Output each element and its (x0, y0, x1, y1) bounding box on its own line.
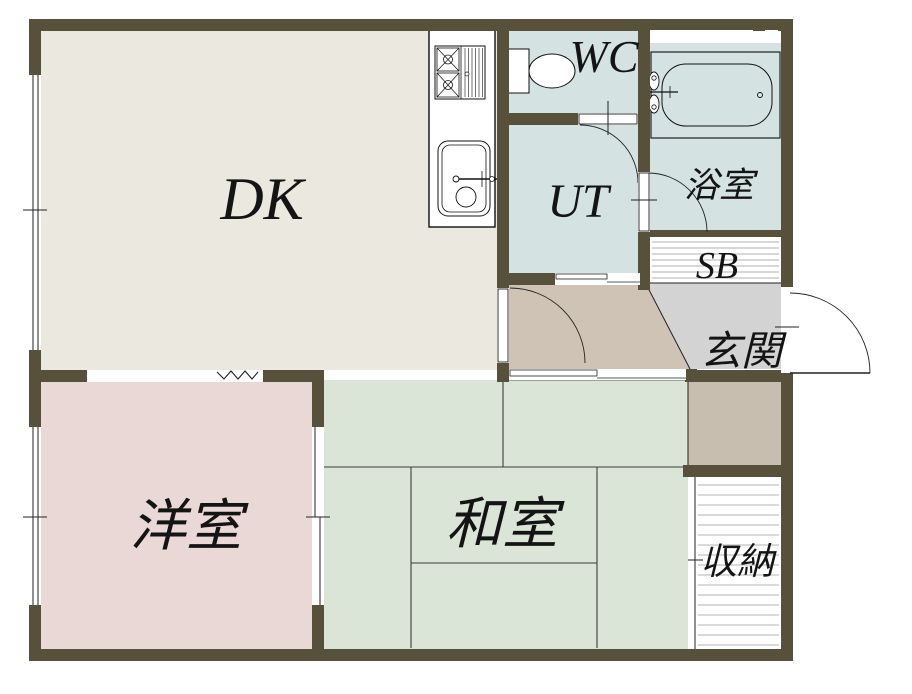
floor-plan: DK WC UT 浴室 SB 玄関 洋室 和室 収納 (0, 0, 912, 694)
kitchen-sink-icon (438, 141, 497, 216)
room-label-bath: 浴室 (684, 166, 759, 205)
wall-right-lower (781, 373, 793, 661)
wall-western-japanese-lower (312, 605, 324, 649)
side-floor (688, 382, 781, 465)
wall-dk-wc (497, 31, 509, 288)
bath-top-window (650, 30, 778, 43)
wall-ut-hall (509, 273, 555, 285)
room-label-ut: UT (547, 175, 612, 228)
entrance-door (775, 287, 870, 373)
wall-dk-western-right (263, 370, 324, 382)
wall-bath-sb (650, 230, 781, 237)
room-label-dk: DK (219, 166, 306, 232)
wall-right-upper (781, 19, 793, 287)
room-label-storage: 収納 (700, 542, 777, 583)
entrance-door-arc (790, 293, 870, 373)
stove-icon (435, 46, 485, 99)
floor-plan-drawing: DK WC UT 浴室 SB 玄関 洋室 和室 収納 (0, 0, 912, 694)
dk-western-opening (87, 370, 263, 382)
kitchen-unit (429, 30, 497, 227)
wall-left-upper (29, 19, 41, 75)
wall-dk-hall-stub (497, 363, 509, 382)
room-label-western-room: 洋室 (130, 496, 249, 558)
wall-bottom (29, 649, 793, 661)
wall-top (29, 19, 793, 31)
hall-japanese-sliding-door (509, 369, 686, 380)
wall-western-japanese-upper (312, 382, 324, 427)
wall-left-middle (29, 350, 41, 427)
room-label-japanese-room: 和室 (446, 494, 565, 556)
room-label-wc: WC (570, 31, 640, 82)
wall-wc-bath-upper (638, 31, 650, 172)
wall-storage-top (683, 465, 781, 477)
wall-wc-ut (509, 113, 578, 125)
room-label-shoe-box: SB (696, 245, 738, 287)
ut-hall-sliding-door (555, 273, 640, 285)
wall-dk-western-left (29, 370, 87, 382)
room-label-entrance: 玄関 (700, 328, 787, 374)
wall-left-lower (29, 605, 41, 661)
